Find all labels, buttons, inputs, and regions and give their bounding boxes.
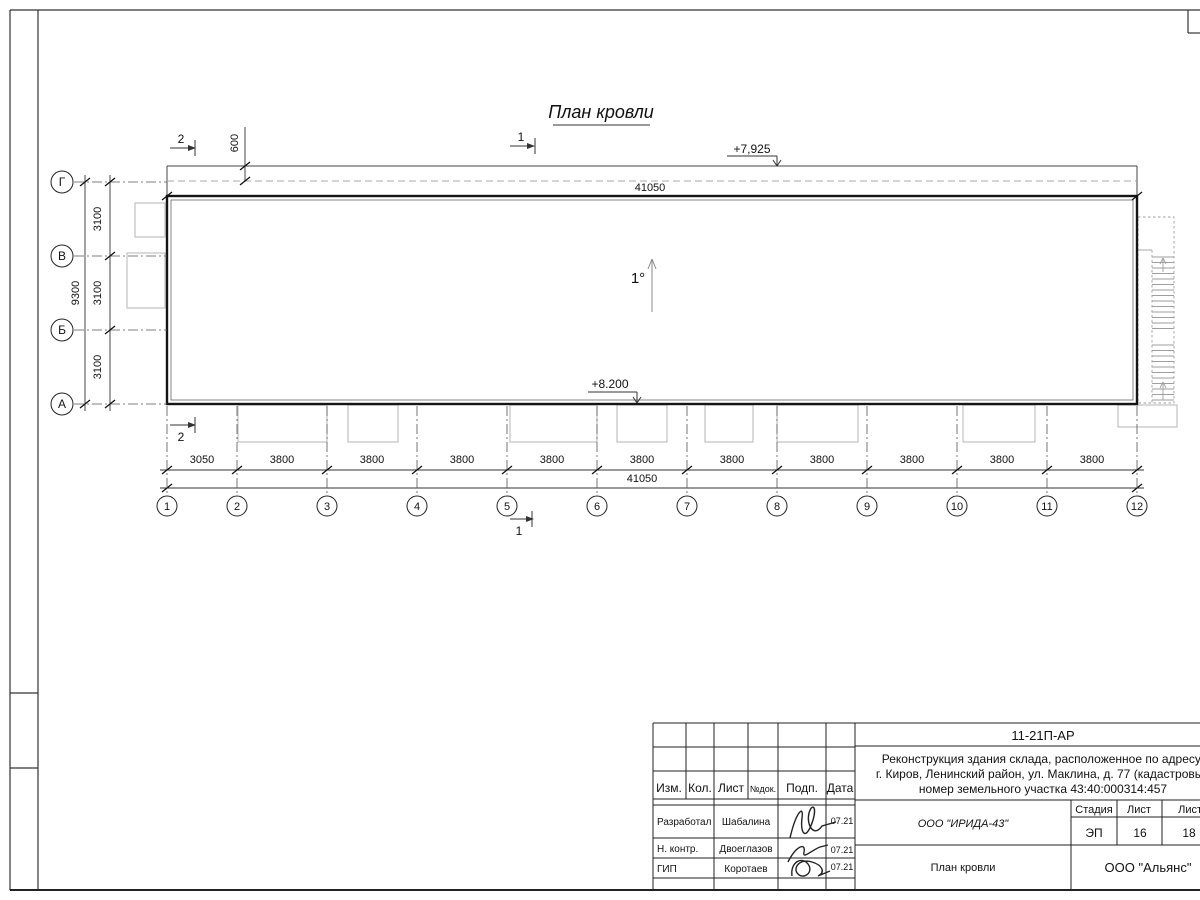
- elevation-low-label: +8.200: [591, 377, 628, 391]
- customer-org: ООО "Альянс": [1105, 860, 1192, 875]
- date-ncontrol: 07.21: [831, 845, 854, 855]
- col-header-data: Дата: [827, 781, 854, 795]
- dim-bottom-label: 3800: [810, 454, 834, 466]
- axis-number-1: 1: [164, 501, 170, 513]
- axis-number-4: 4: [414, 501, 420, 513]
- dim-bottom-label: 3800: [270, 454, 294, 466]
- axis-number-3: 3: [324, 501, 330, 513]
- elevation-high-label: +7,925: [733, 142, 770, 156]
- col-header-izm: Изм.: [656, 781, 682, 795]
- roof-plan-canvas: 1234567891011123050380038003800380038003…: [0, 0, 1200, 900]
- col-header-podp: Подп.: [786, 781, 818, 795]
- section-mark-1-top: 1: [518, 130, 525, 144]
- plan-title: План кровли: [548, 102, 654, 122]
- dim-left-total-label: 9300: [70, 281, 82, 305]
- axis-number-8: 8: [774, 501, 780, 513]
- project-line-1: Реконструкция здания склада, расположенн…: [882, 752, 1200, 766]
- date-developed: 07.21: [831, 816, 854, 826]
- axis-number-5: 5: [504, 501, 510, 513]
- elevation-high-arrowhead: [773, 160, 777, 166]
- section-mark-1-bottom: 1: [516, 524, 523, 538]
- axis-number-2: 2: [234, 501, 240, 513]
- dim-bottom-label: 3050: [190, 454, 214, 466]
- dim-bottom-label: 3800: [450, 454, 474, 466]
- dim-600-label: 600: [229, 134, 241, 152]
- axis-letter-А: А: [58, 397, 66, 411]
- canopy-rect: [705, 405, 753, 442]
- axis-number-7: 7: [684, 501, 690, 513]
- canopy-rect: [348, 405, 398, 442]
- dim-bottom-label: 3800: [1080, 454, 1104, 466]
- name-gip: Коротаев: [724, 864, 767, 875]
- axis-number-9: 9: [864, 501, 870, 513]
- role-ncontrol: Н. контр.: [657, 844, 698, 855]
- sheet-number: 16: [1133, 826, 1147, 840]
- stage-header: Стадия: [1075, 804, 1113, 816]
- external-stair-outline: [1138, 217, 1174, 403]
- section-arrowhead: [527, 143, 535, 149]
- left-annex-rect: [135, 203, 165, 237]
- sheets-total: 18: [1182, 826, 1196, 840]
- section-arrowhead: [526, 516, 534, 522]
- canopy-rect: [510, 405, 597, 442]
- drawing-sheet: 1234567891011123050380038003800380038003…: [0, 0, 1200, 900]
- canopy-rect: [963, 405, 1035, 442]
- canopy-rect: [777, 405, 858, 442]
- dim-total-top-label: 41050: [635, 182, 666, 194]
- axis-letter-Б: Б: [58, 323, 66, 337]
- canopy-rect: [617, 405, 667, 442]
- date-gip: 07.21: [831, 862, 854, 872]
- dim-bottom-label: 3800: [540, 454, 564, 466]
- dim-bottom-label: 3800: [360, 454, 384, 466]
- dim-bottom-label: 3800: [630, 454, 654, 466]
- name-developed: Шабалина: [722, 816, 771, 828]
- role-developed: Разработал: [657, 816, 712, 828]
- dim-bottom-label: 3800: [990, 454, 1014, 466]
- dim-bottom-label: 3800: [720, 454, 744, 466]
- section-mark-2-top: 2: [178, 132, 185, 146]
- titleblock-sheet-title: План кровли: [931, 862, 996, 874]
- col-header-list: Лист: [718, 781, 745, 795]
- left-annex-rect: [127, 253, 165, 308]
- col-header-kol: Кол.: [688, 781, 712, 795]
- project-line-2: г. Киров, Ленинский район, ул. Маклина, …: [876, 767, 1200, 781]
- name-ncontrol: Двоеглазов: [719, 844, 772, 855]
- slope-label: 1°: [631, 270, 645, 287]
- signature-gip: [792, 860, 830, 876]
- section-mark-2-bottom: 2: [178, 430, 185, 444]
- signature-developed: [790, 807, 836, 838]
- col-header-ndok: №док.: [750, 784, 776, 794]
- canopy-rect: [238, 405, 327, 442]
- dim-left-label: 3100: [92, 281, 104, 305]
- dim-bottom-label: 3800: [900, 454, 924, 466]
- axis-letter-В: В: [58, 249, 66, 263]
- axis-number-12: 12: [1131, 501, 1143, 513]
- stair-landing-rect: [1118, 405, 1177, 427]
- dim-left-label: 3100: [92, 355, 104, 379]
- axis-number-11: 11: [1041, 501, 1052, 513]
- axis-number-6: 6: [594, 501, 600, 513]
- axis-letter-Г: Г: [59, 175, 66, 189]
- signature-ncontrol: [788, 845, 828, 862]
- stage-value: ЭП: [1085, 826, 1102, 840]
- dim-left-label: 3100: [92, 207, 104, 231]
- doc-code: 11-21П-АР: [1011, 728, 1074, 743]
- project-line-3: номер земельного участка 43:40:000314:45…: [919, 782, 1168, 796]
- elevation-high-arrowhead: [777, 160, 781, 166]
- axis-number-10: 10: [951, 501, 963, 513]
- dim-total-bottom-label: 41050: [627, 473, 658, 485]
- sheet-header: Лист: [1127, 804, 1151, 816]
- sheets-header: Листов: [1178, 804, 1200, 816]
- designer-org: ООО "ИРИДА-43": [918, 818, 1010, 830]
- role-gip: ГИП: [657, 864, 677, 875]
